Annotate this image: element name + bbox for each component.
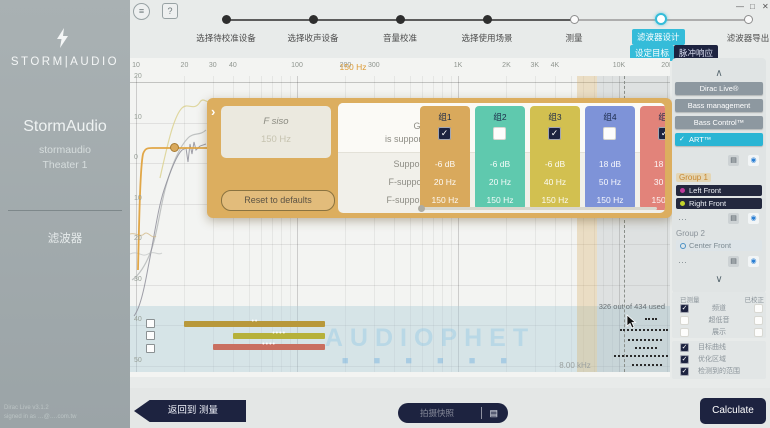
f-siso-value[interactable]: 150 Hz xyxy=(221,134,331,145)
corrected-checkbox[interactable] xyxy=(754,328,763,337)
f-support-low-value[interactable]: 20 Hz xyxy=(475,177,525,187)
snapshot-list-icon: ▤ xyxy=(489,403,498,423)
snapshot-label: 拍摄快照 xyxy=(420,403,454,423)
channel-label: Center Front xyxy=(689,241,731,250)
channel-label: Left Front xyxy=(689,186,721,195)
channel-color-dot xyxy=(680,201,685,206)
channel-color-dot xyxy=(680,188,685,193)
target-curve-handle[interactable] xyxy=(170,143,179,152)
step-label-4[interactable]: 选择使用场景 xyxy=(442,32,532,44)
overlay-checkbox[interactable]: ✓ xyxy=(680,343,689,352)
lightning-icon xyxy=(56,28,69,53)
legend-row-label: 目标曲线 xyxy=(698,343,726,353)
dotted-level-segment xyxy=(614,355,668,357)
group-name: 组5 xyxy=(640,111,665,123)
ftick: 20 xyxy=(172,62,196,69)
support-level-value[interactable]: -6 dB xyxy=(420,159,470,169)
product-name: StormAudio xyxy=(0,118,130,136)
tab-bass-management[interactable]: Bass management xyxy=(675,99,763,112)
step-label-7[interactable]: 滤波器导出 xyxy=(703,32,770,44)
group-column-1: 组1 ✓ -6 dB 20 Hz 150 Hz xyxy=(420,106,470,210)
target-icon[interactable]: ◉ xyxy=(748,213,759,224)
f-support-low-value[interactable]: 30 Hz xyxy=(640,177,665,187)
group-range-bar[interactable]: •••• xyxy=(213,344,326,350)
step-node-4[interactable] xyxy=(483,15,492,24)
dbtick: 30 xyxy=(134,276,150,283)
step-node-7[interactable] xyxy=(744,15,753,24)
brand-logo: STORM|AUDIO xyxy=(0,56,130,68)
group-name: 组1 xyxy=(420,111,470,123)
overlay-legend: ✓ 目标曲线 ✓ 优化区域 ✓ 检测到的范围 xyxy=(672,341,766,379)
scrollbar-knob[interactable] xyxy=(418,205,425,212)
f-support-low-value[interactable]: 50 Hz xyxy=(585,177,635,187)
group-support-checkbox[interactable] xyxy=(603,127,616,140)
group-support-checkbox[interactable]: ✓ xyxy=(438,127,451,140)
device-name: stormaudio xyxy=(0,144,130,156)
dotted-level-segment xyxy=(628,339,662,341)
ftick: 4K xyxy=(543,62,567,69)
theater-name: Theater 1 xyxy=(0,159,130,171)
ftick: 100 xyxy=(285,62,309,69)
measured-header: 已测量 xyxy=(680,294,700,304)
matrix-scrollbar[interactable] xyxy=(420,207,657,210)
legend-row-subwoofers: 超低音 xyxy=(672,316,766,328)
step-label-5[interactable]: 测量 xyxy=(529,32,619,44)
f-support-low-value[interactable]: 40 Hz xyxy=(530,177,580,187)
f-support-high-value[interactable]: 150 Hz xyxy=(530,195,580,205)
channel-right-front[interactable]: Right Front xyxy=(676,198,762,209)
corrected-checkbox[interactable] xyxy=(754,316,763,325)
legend-row-label: 超低音 xyxy=(672,316,766,326)
help-button[interactable]: ? xyxy=(162,3,178,19)
close-button[interactable]: ✕ xyxy=(762,2,769,11)
bar-checkbox-2[interactable] xyxy=(146,331,155,340)
ftick: 2K xyxy=(494,62,518,69)
support-level-value[interactable]: 18 dB xyxy=(640,159,665,169)
f-siso-title: F siso xyxy=(221,116,331,127)
group-column-2: 组2 -6 dB 20 Hz 150 Hz xyxy=(475,106,525,210)
take-snapshot-button[interactable]: 拍摄快照 ▤ xyxy=(398,403,508,423)
step-label-3[interactable]: 音量校准 xyxy=(355,32,445,44)
step-node-6[interactable] xyxy=(655,13,667,25)
channel-label: Right Front xyxy=(689,199,726,208)
group-column-5: 组5 ✓ 18 dB 30 Hz 150 Hz xyxy=(640,106,665,210)
snapshot-divider xyxy=(481,407,482,419)
filter-taps-used-label: 326 out of 434 used xyxy=(530,302,665,311)
support-level-value[interactable]: -6 dB xyxy=(530,159,580,169)
target-icon[interactable]: ◉ xyxy=(748,256,759,267)
f-siso-card[interactable]: F siso 150 Hz xyxy=(221,106,331,158)
legend-row-display: 展示 xyxy=(672,328,766,340)
f-support-high-value[interactable]: 150 Hz xyxy=(420,195,470,205)
ftick: 40 xyxy=(221,62,245,69)
group-range-bar[interactable]: •• xyxy=(184,321,325,327)
bar-drag-dots: •• xyxy=(184,318,325,325)
support-level-value[interactable]: -6 dB xyxy=(475,159,525,169)
snapshot-icon[interactable]: ▤ xyxy=(728,256,739,267)
app-window: STORM|AUDIO StormAudio stormaudio Theate… xyxy=(0,0,770,428)
group-name: 组2 xyxy=(475,111,525,123)
step-label-1[interactable]: 选择待校准设备 xyxy=(181,32,271,44)
corrected-checkbox[interactable] xyxy=(754,304,763,313)
tab-art[interactable]: ✓ ART™ xyxy=(675,133,763,146)
dbtick: 50 xyxy=(134,357,150,364)
legend-row-label: 检测到的范围 xyxy=(698,367,740,377)
corrected-header: 已校正 xyxy=(745,294,765,304)
snapshot-icon[interactable]: ▤ xyxy=(728,155,739,166)
legend-row-label: 优化区域 xyxy=(698,355,726,365)
step-node-2[interactable] xyxy=(309,15,318,24)
legend-row-optimization-region: ✓ 优化区域 xyxy=(672,355,766,367)
maximize-button[interactable]: □ xyxy=(750,2,755,11)
dbtick: 20 xyxy=(134,235,150,242)
ftick: 10 xyxy=(130,62,148,69)
bar-drag-dots: •••• xyxy=(233,330,325,337)
dbtick: 20 xyxy=(134,73,150,80)
group-column-4: 组4 18 dB 50 Hz 150 Hz xyxy=(585,106,635,210)
group-1-title[interactable]: Group 1 xyxy=(676,173,711,182)
dotted-level-segment xyxy=(620,329,668,331)
channel-color-dot xyxy=(680,243,686,249)
app-version: Dirac Live v3.1.2 xyxy=(4,405,49,411)
dbtick: 10 xyxy=(134,114,150,121)
display-legend: 已测量 已校正 ✓ 频道 超低音 展示 xyxy=(672,292,766,338)
menu-button[interactable]: ≡ xyxy=(133,3,150,20)
tab-bass-control[interactable]: Bass Control™ xyxy=(675,116,763,129)
ftick: 1K xyxy=(446,62,470,69)
f-support-high-value[interactable]: 150 Hz xyxy=(585,195,635,205)
snapshot-icon[interactable]: ▤ xyxy=(728,213,739,224)
step-node-3[interactable] xyxy=(396,15,405,24)
chevron-down-icon[interactable]: ∨ xyxy=(672,274,766,285)
dbtick: 10 xyxy=(134,195,150,202)
group-support-checkbox[interactable]: ✓ xyxy=(548,127,561,140)
ftick: 10K xyxy=(607,62,631,69)
channel-center-front[interactable]: Center Front xyxy=(676,240,762,251)
dbtick: 0 xyxy=(134,154,150,161)
dotted-level-segment xyxy=(645,318,657,320)
curtain-frequency-label: 8.00 kHz xyxy=(545,361,605,370)
step-label-2[interactable]: 选择收声设备 xyxy=(268,32,358,44)
more-options-icon[interactable]: ⋯ xyxy=(678,214,688,225)
bar-checkbox-1[interactable] xyxy=(146,319,155,328)
art-group-dialog: › F siso 150 Hz Reset to defaults Group … xyxy=(207,98,672,218)
sidebar: STORM|AUDIO StormAudio stormaudio Theate… xyxy=(0,0,130,428)
dotted-level-segment xyxy=(635,347,657,349)
sidebar-divider xyxy=(8,210,122,211)
legend-row-label: 展示 xyxy=(672,328,766,338)
group-support-checkbox[interactable] xyxy=(493,127,506,140)
mouse-cursor xyxy=(626,314,637,329)
f-support-high-value[interactable]: 150 Hz xyxy=(475,195,525,205)
channel-left-front[interactable]: Left Front xyxy=(676,185,762,196)
reset-to-defaults-button[interactable]: Reset to defaults xyxy=(221,190,335,211)
dotted-level-segment xyxy=(632,364,662,366)
group-support-checkbox[interactable]: ✓ xyxy=(658,127,665,140)
overlay-checkbox[interactable]: ✓ xyxy=(680,367,689,376)
sidebar-item-filters[interactable]: 滤波器 xyxy=(0,230,130,246)
chevron-up-icon[interactable]: ∧ xyxy=(672,68,766,79)
hamburger-icon: ≡ xyxy=(139,6,144,16)
legend-row-channels: ✓ 频道 xyxy=(672,304,766,316)
step-label-6-active[interactable]: 滤波器设计 xyxy=(632,29,685,45)
tab-dirac-live[interactable]: Dirac Live® xyxy=(675,82,763,95)
help-icon: ? xyxy=(167,6,172,16)
group-name: 组4 xyxy=(585,111,635,123)
ftick: 20K xyxy=(655,62,670,69)
legend-row-label: 频道 xyxy=(672,304,766,314)
calculate-button[interactable]: Calculate xyxy=(700,398,766,424)
bar-checkbox-3[interactable] xyxy=(146,344,155,353)
group-column-3: 组3 ✓ -6 dB 40 Hz 150 Hz xyxy=(530,106,580,210)
target-icon[interactable]: ◉ xyxy=(748,155,759,166)
tab-art-label: ART™ xyxy=(689,135,711,144)
collapse-panel-icon[interactable]: › xyxy=(211,104,215,119)
target-crossover-label: 150 Hz xyxy=(323,62,383,72)
check-icon: ✓ xyxy=(679,133,685,146)
more-options-icon[interactable]: ⋯ xyxy=(678,257,688,268)
signed-in-label: signed in as …@….com.tw xyxy=(4,414,76,420)
legend-row-target-curve: ✓ 目标曲线 xyxy=(672,343,766,355)
minimize-button[interactable]: — xyxy=(736,2,744,11)
back-to-measurements-button[interactable]: 返回到 测量 xyxy=(134,400,246,422)
support-matrix: Group 1 is supported by Support level F-… xyxy=(338,103,665,213)
step-node-1[interactable] xyxy=(222,15,231,24)
support-level-value[interactable]: 18 dB xyxy=(585,159,635,169)
f-support-low-value[interactable]: 20 Hz xyxy=(420,177,470,187)
group-2-title[interactable]: Group 2 xyxy=(676,229,705,238)
group-name: 组3 xyxy=(530,111,580,123)
f-support-high-value[interactable]: 150 Hz xyxy=(640,195,665,205)
step-node-5[interactable] xyxy=(570,15,579,24)
legend-row-detected-range: ✓ 检测到的范围 xyxy=(672,367,766,379)
group-range-bar[interactable]: •••• xyxy=(233,333,325,339)
overlay-checkbox[interactable]: ✓ xyxy=(680,355,689,364)
bar-drag-dots: •••• xyxy=(213,341,326,348)
